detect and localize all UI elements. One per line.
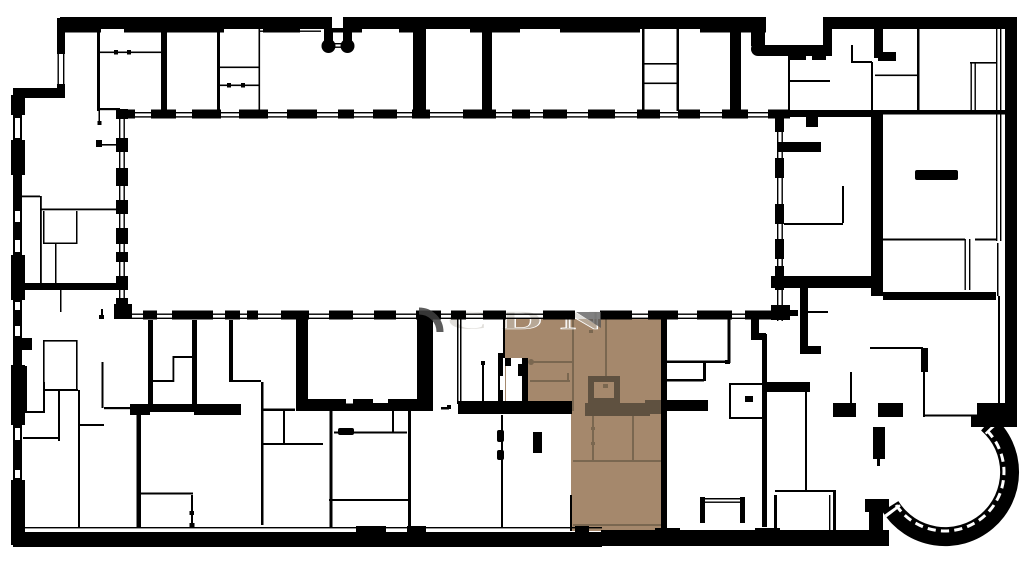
svg-text:D: D (500, 306, 543, 335)
svg-text:C: C (446, 306, 489, 335)
